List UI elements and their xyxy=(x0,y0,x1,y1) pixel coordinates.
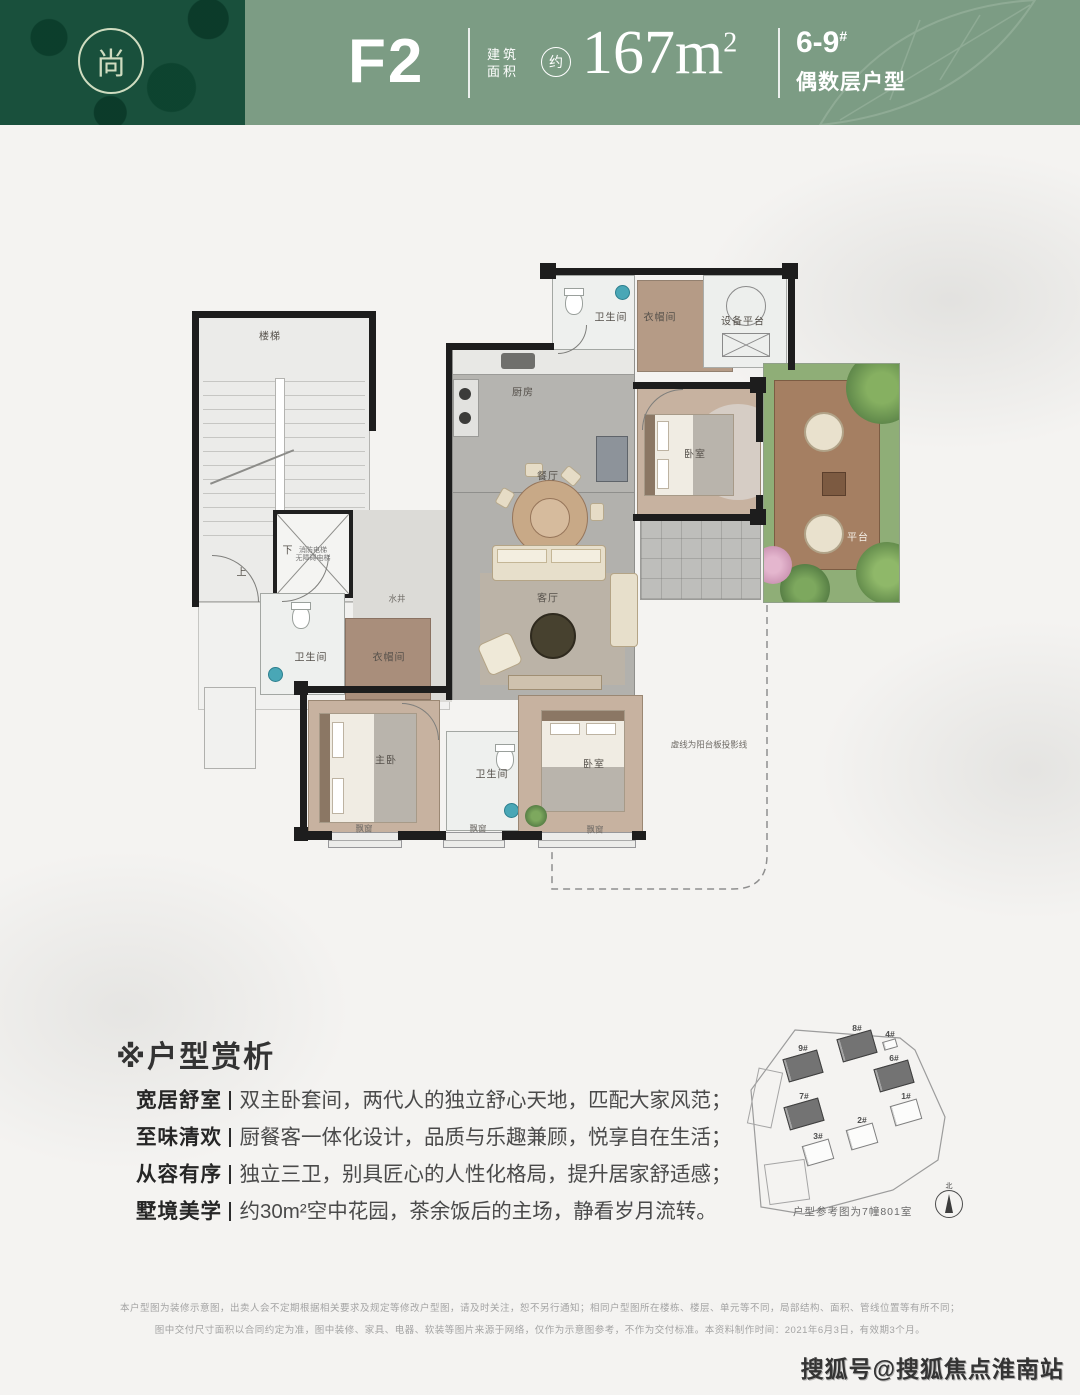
unit-model: F2 xyxy=(348,26,424,97)
coffee-table xyxy=(530,613,576,659)
compass-needle xyxy=(945,1194,953,1213)
leaf-watermark xyxy=(780,0,1040,125)
building-shape xyxy=(890,1099,923,1127)
wall-corner xyxy=(294,827,308,841)
area-value: 167m2 xyxy=(582,18,737,89)
wall-corner xyxy=(294,681,308,695)
bedroom-plant xyxy=(525,805,547,827)
toilet xyxy=(565,291,583,315)
header-divider xyxy=(468,28,470,98)
wall xyxy=(502,831,542,840)
building-shape xyxy=(873,1060,914,1093)
room-label-kitchen: 厨房 xyxy=(512,388,534,399)
sofa xyxy=(492,545,606,581)
analysis-title-text: 户型赏析 xyxy=(147,1041,275,1074)
room-label-bath-north: 卫生间 xyxy=(595,313,628,324)
wall xyxy=(446,343,554,350)
analysis-item-divider xyxy=(229,1091,231,1110)
kitchen-fridge xyxy=(596,436,628,482)
header-logo-panel: 尚 xyxy=(0,0,245,125)
area-superscript: 2 xyxy=(723,27,737,58)
room-label-elevator: 消防电梯 无障碍电梯 xyxy=(296,547,331,563)
compass-icon: 北 xyxy=(935,1190,963,1218)
room-label-living-room: 客厅 xyxy=(537,594,559,605)
area-number: 167m xyxy=(582,19,723,87)
building-shape xyxy=(783,1098,824,1131)
analysis-item: 宽居舒室双主卧套间，两代人的独立舒心天地，匹配大家风范； xyxy=(136,1082,732,1119)
room-terrace xyxy=(763,363,900,603)
building-shape xyxy=(846,1123,879,1151)
building-shape xyxy=(782,1050,823,1083)
room-label-bedroom-north: 卧室 xyxy=(684,450,706,461)
disclaimer-line-1: 本户型图为装修示意图，出卖人会不定期根据相关要求及规定等修改户型图，请及时关注，… xyxy=(110,1300,970,1314)
wall xyxy=(398,831,446,840)
analysis-item-divider xyxy=(229,1202,231,1221)
siteplan-building-8: 8# xyxy=(839,1034,875,1058)
analysis-item-divider xyxy=(229,1128,231,1147)
wall xyxy=(300,686,307,838)
room-label-stairs-up: 上 xyxy=(237,568,248,579)
room-label-projection-note: 虚线为阳台板投影线 xyxy=(671,740,748,751)
building-shape xyxy=(882,1038,898,1051)
terrace-chair xyxy=(804,514,844,554)
room-balcony-north xyxy=(640,520,761,600)
poster-page: 尚 F2 建筑 面积 约 167m2 6-9# 偶数层户型 xyxy=(0,0,1080,1395)
building-range: 6-9# xyxy=(796,26,847,60)
room-label-bath-west: 卫生间 xyxy=(295,653,328,664)
wall xyxy=(633,514,763,521)
wall xyxy=(369,311,376,431)
room-label-dining-room: 餐厅 xyxy=(537,472,559,483)
kitchen-sink xyxy=(501,353,535,369)
wall xyxy=(788,268,795,370)
dining-chair xyxy=(590,503,604,521)
room-label-bedroom-south: 卧室 xyxy=(583,760,605,771)
room-label-bath-south: 卫生间 xyxy=(476,770,509,781)
watermark: 搜狐号@搜狐焦点淮南站 xyxy=(801,1350,1064,1384)
siteplan-building-9: 9# xyxy=(785,1054,821,1078)
brand-seal-character: 尚 xyxy=(96,39,126,83)
analysis-item-tag: 至味清欢 xyxy=(136,1126,222,1149)
wall xyxy=(633,382,763,389)
washbasin xyxy=(504,803,519,818)
analysis-item: 至味清欢厨餐客一体化设计，品质与乐趣兼顾，悦享自在生活； xyxy=(136,1119,732,1156)
washbasin xyxy=(268,667,283,682)
side-sofa xyxy=(610,573,638,647)
room-label-equipment-platform: 设备平台 xyxy=(721,317,765,328)
wall xyxy=(300,686,448,693)
wall xyxy=(192,311,199,607)
room-label-bay-window-master: 飘窗 xyxy=(355,824,372,835)
wall-corner xyxy=(782,263,798,279)
room-label-terrace: 平台 xyxy=(847,533,869,544)
analysis-item-tag: 墅境美学 xyxy=(136,1200,222,1223)
analysis-item-tag: 从容有序 xyxy=(136,1163,222,1186)
building-label: 4# xyxy=(885,1029,894,1039)
building-range-number: 6-9 xyxy=(796,26,839,59)
building-range-superscript: # xyxy=(839,28,847,44)
siteplan-building-1: 1# xyxy=(892,1102,920,1123)
terrace-chair xyxy=(804,412,844,452)
washbasin xyxy=(615,285,630,300)
room-label-master-bedroom: 主卧 xyxy=(375,756,397,767)
analysis-title: ※户型赏析 xyxy=(116,1032,275,1076)
analysis-title-mark: ※ xyxy=(116,1041,147,1074)
analysis-list: 宽居舒室双主卧套间，两代人的独立舒心天地，匹配大家风范； 至味清欢厨餐客一体化设… xyxy=(136,1082,732,1230)
tv-console xyxy=(508,675,602,690)
kitchen-counter xyxy=(453,349,634,375)
siteplan-building-7: 7# xyxy=(786,1102,822,1126)
terrace-table xyxy=(822,472,846,496)
room-label-cloak-master: 衣帽间 xyxy=(373,653,406,664)
analysis-item-text: 厨餐客一体化设计，品质与乐趣兼顾，悦享自在生活； xyxy=(240,1126,732,1149)
header-divider xyxy=(778,28,780,98)
wall xyxy=(192,311,376,318)
wall xyxy=(632,831,646,840)
room-label-bay-window-south: 飘窗 xyxy=(586,825,603,836)
siteplan-building-4: 4# xyxy=(883,1040,897,1049)
wall-corner xyxy=(540,263,556,279)
compass-north-label: 北 xyxy=(946,1181,953,1191)
kitchen-stove xyxy=(453,379,479,437)
analysis-item-text: 双主卧套间，两代人的独立舒心天地，匹配大家风范； xyxy=(240,1089,732,1112)
ac-platform xyxy=(204,687,256,769)
analysis-item: 从容有序独立三卫，别具匠心的人性化格局，提升居家舒适感； xyxy=(136,1156,732,1193)
room-label-stairs-down: 下 xyxy=(283,546,294,557)
siteplan: 9#8#4#6#7#1#2#3# 户型参考图为7幢801室 北 xyxy=(745,1022,980,1227)
room-label-bay-window-mid: 飘窗 xyxy=(469,824,486,835)
approx-circle-badge: 约 xyxy=(541,47,571,77)
wall xyxy=(545,268,795,275)
siteplan-building-3: 3# xyxy=(804,1142,832,1163)
building-shape xyxy=(836,1030,877,1063)
analysis-item-text: 约30m²空中花园，茶余饭后的主场，静看岁月流转。 xyxy=(240,1200,717,1223)
analysis-item-text: 独立三卫，别具匠心的人性化格局，提升居家舒适感； xyxy=(240,1163,732,1186)
wall-corner xyxy=(750,509,766,525)
room-label-cloak-north: 衣帽间 xyxy=(644,313,677,324)
analysis-item-divider xyxy=(229,1165,231,1184)
floorplan: 楼梯上下消防电梯 无障碍电梯水井厨房餐厅客厅卫生间衣帽间设备平台卧室平台卫生间衣… xyxy=(190,255,908,907)
building-shape xyxy=(802,1139,835,1167)
header-banner: 尚 F2 建筑 面积 约 167m2 6-9# 偶数层户型 xyxy=(0,0,1080,125)
equipment-unit xyxy=(722,333,770,357)
brand-seal-icon: 尚 xyxy=(78,28,144,94)
wall xyxy=(446,343,452,700)
area-label: 建筑 面积 xyxy=(487,46,519,80)
toilet xyxy=(292,605,310,629)
analysis-item: 墅境美学约30m²空中花园，茶余饭后的主场，静看岁月流转。 xyxy=(136,1193,732,1230)
room-bedroom-south xyxy=(518,695,643,836)
room-label-stairs: 楼梯 xyxy=(259,332,281,343)
siteplan-caption: 户型参考图为7幢801室 xyxy=(793,1204,912,1219)
wall-corner xyxy=(750,377,766,393)
disclaimer-line-2: 图中交付尺寸面积以合同约定为准，图中装修、家具、电器、软装等图片来源于网络，仅作… xyxy=(110,1322,970,1336)
siteplan-building-6: 6# xyxy=(876,1064,912,1088)
room-label-water-well: 水井 xyxy=(388,594,405,605)
siteplan-building-2: 2# xyxy=(848,1126,876,1147)
toilet xyxy=(496,747,514,771)
analysis-item-tag: 宽居舒室 xyxy=(136,1089,222,1112)
building-floor-type: 偶数层户型 xyxy=(796,66,906,96)
